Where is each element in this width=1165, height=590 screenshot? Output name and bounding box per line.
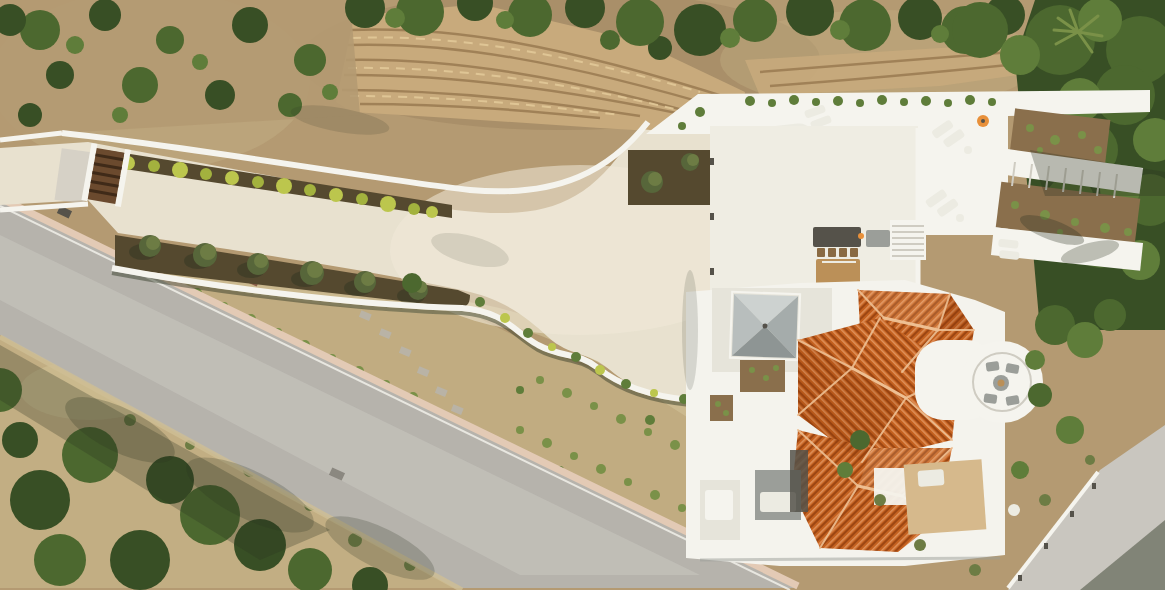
- pyramid-pavilion-roof: [730, 292, 800, 360]
- villa: [686, 280, 1043, 566]
- bush: [402, 273, 422, 293]
- aerial-photo-canvas: [0, 0, 1165, 590]
- white-sphere-ornament: [1008, 504, 1020, 516]
- upper-court: [710, 126, 926, 303]
- fire-pit-terrace: [915, 340, 1043, 423]
- corner-planter: [628, 150, 712, 205]
- tan-terrace: [904, 459, 987, 534]
- outdoor-kitchen: [813, 227, 890, 247]
- stairs-to-deck: [890, 220, 926, 260]
- aerial-photo: [0, 0, 1165, 590]
